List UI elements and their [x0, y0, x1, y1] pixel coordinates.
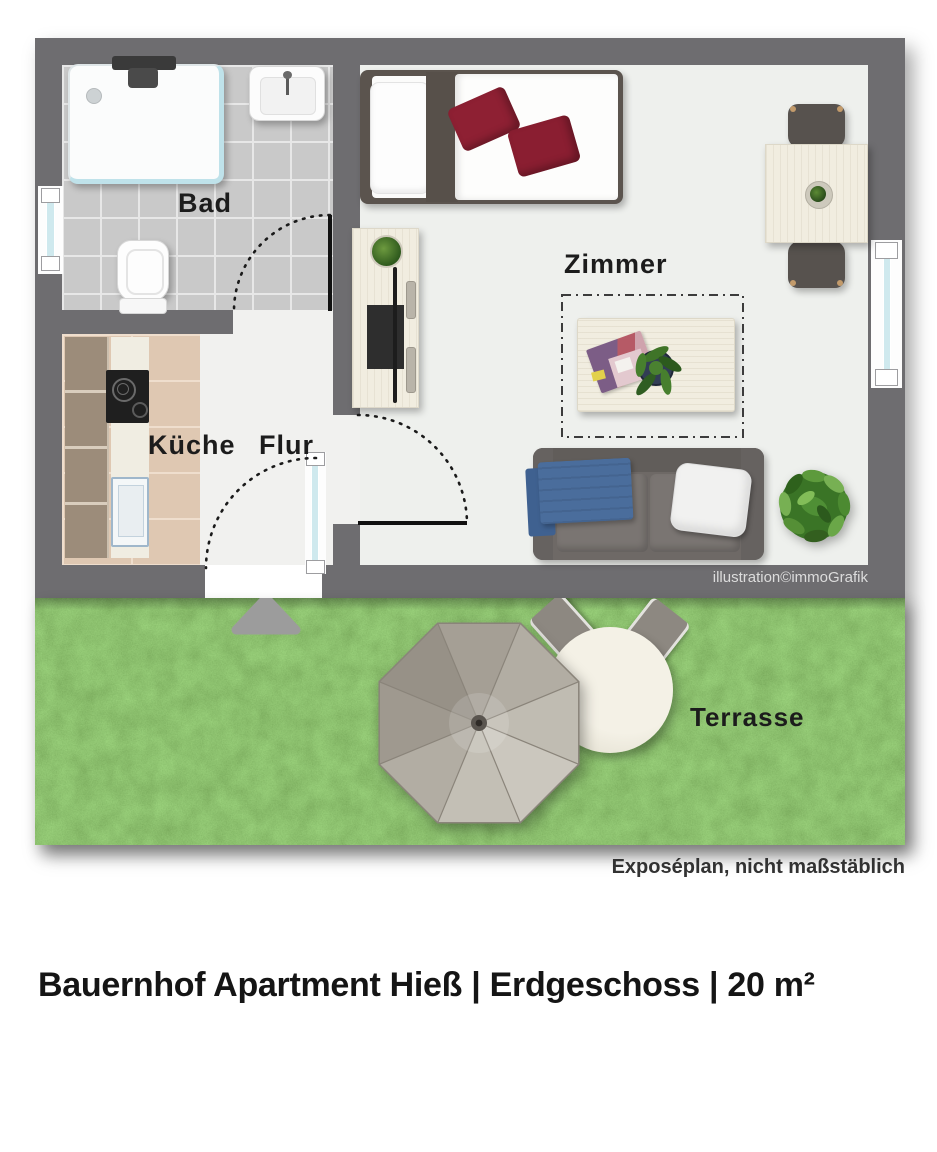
burner-icon [117, 383, 129, 395]
sink-basin [118, 485, 144, 537]
room-label-zimmer: Zimmer [564, 249, 668, 280]
sofa-throw-blue [537, 458, 633, 525]
coffee-table-plant [626, 338, 686, 400]
bad-door-opening [233, 310, 333, 334]
cooktop [106, 370, 149, 423]
room-label-kueche: Küche [148, 430, 236, 461]
dining-chair [788, 241, 845, 288]
chair-knob [837, 280, 843, 286]
tv-screen [393, 267, 397, 403]
shower-drain [86, 88, 102, 104]
door-glass [311, 465, 319, 561]
illustration-credit: illustration©immoGrafik [640, 569, 868, 586]
entrance-door [305, 452, 326, 574]
floor-plant [772, 460, 856, 552]
chair-knob [790, 280, 796, 286]
room-label-bad: Bad [178, 188, 232, 219]
bed-runner [426, 72, 458, 202]
wall-shadow-on-grass [35, 598, 905, 610]
dining-chair [788, 104, 845, 148]
door-cap [306, 560, 325, 574]
toilet-cistern [119, 298, 167, 314]
chair-knob [790, 106, 796, 112]
room-label-flur: Flur [259, 430, 314, 461]
bed [360, 70, 623, 204]
washbasin [249, 66, 325, 121]
burner-icon [132, 402, 148, 418]
chair-knob [837, 106, 843, 112]
garden: Terrasse [35, 598, 905, 845]
floorplan-page: Bad Küche Flur Zimmer illustration©immoG… [0, 0, 937, 1152]
wall-flur-stub [333, 524, 360, 565]
window-cap [41, 188, 60, 203]
window-cap [875, 369, 898, 386]
kitchen-sink [111, 477, 149, 547]
remote-icon [406, 347, 416, 393]
parasol [366, 610, 592, 836]
window-right [871, 240, 902, 388]
faucet-icon [283, 71, 292, 79]
bed-pillow-white [370, 82, 430, 194]
tv-sideboard [352, 228, 419, 408]
toilet [117, 240, 169, 302]
zimmer-door-opening [333, 415, 360, 524]
entrance-arrow-icon [228, 598, 304, 636]
plant-icon [370, 235, 403, 268]
sofa [533, 448, 764, 560]
window-glass [46, 200, 55, 260]
wall-bottom-left [35, 565, 205, 598]
sofa-pillow-white [669, 462, 753, 539]
remote-icon [406, 281, 416, 319]
dining-table [765, 144, 868, 243]
kitchen-cabinets [65, 337, 109, 558]
scale-disclaimer: Exposéplan, nicht maßstäblich [505, 856, 905, 879]
page-title: Bauernhof Apartment Hieß | Erdgeschoss |… [38, 966, 815, 1005]
room-label-terrasse: Terrasse [690, 702, 805, 733]
window-cap [875, 242, 898, 259]
toilet-seat [126, 249, 164, 295]
tv-unit [367, 305, 404, 369]
window-glass [883, 256, 891, 372]
window-left [38, 186, 63, 274]
window-cap [41, 256, 60, 271]
shower-head [128, 68, 158, 88]
plant-icon [810, 186, 826, 202]
